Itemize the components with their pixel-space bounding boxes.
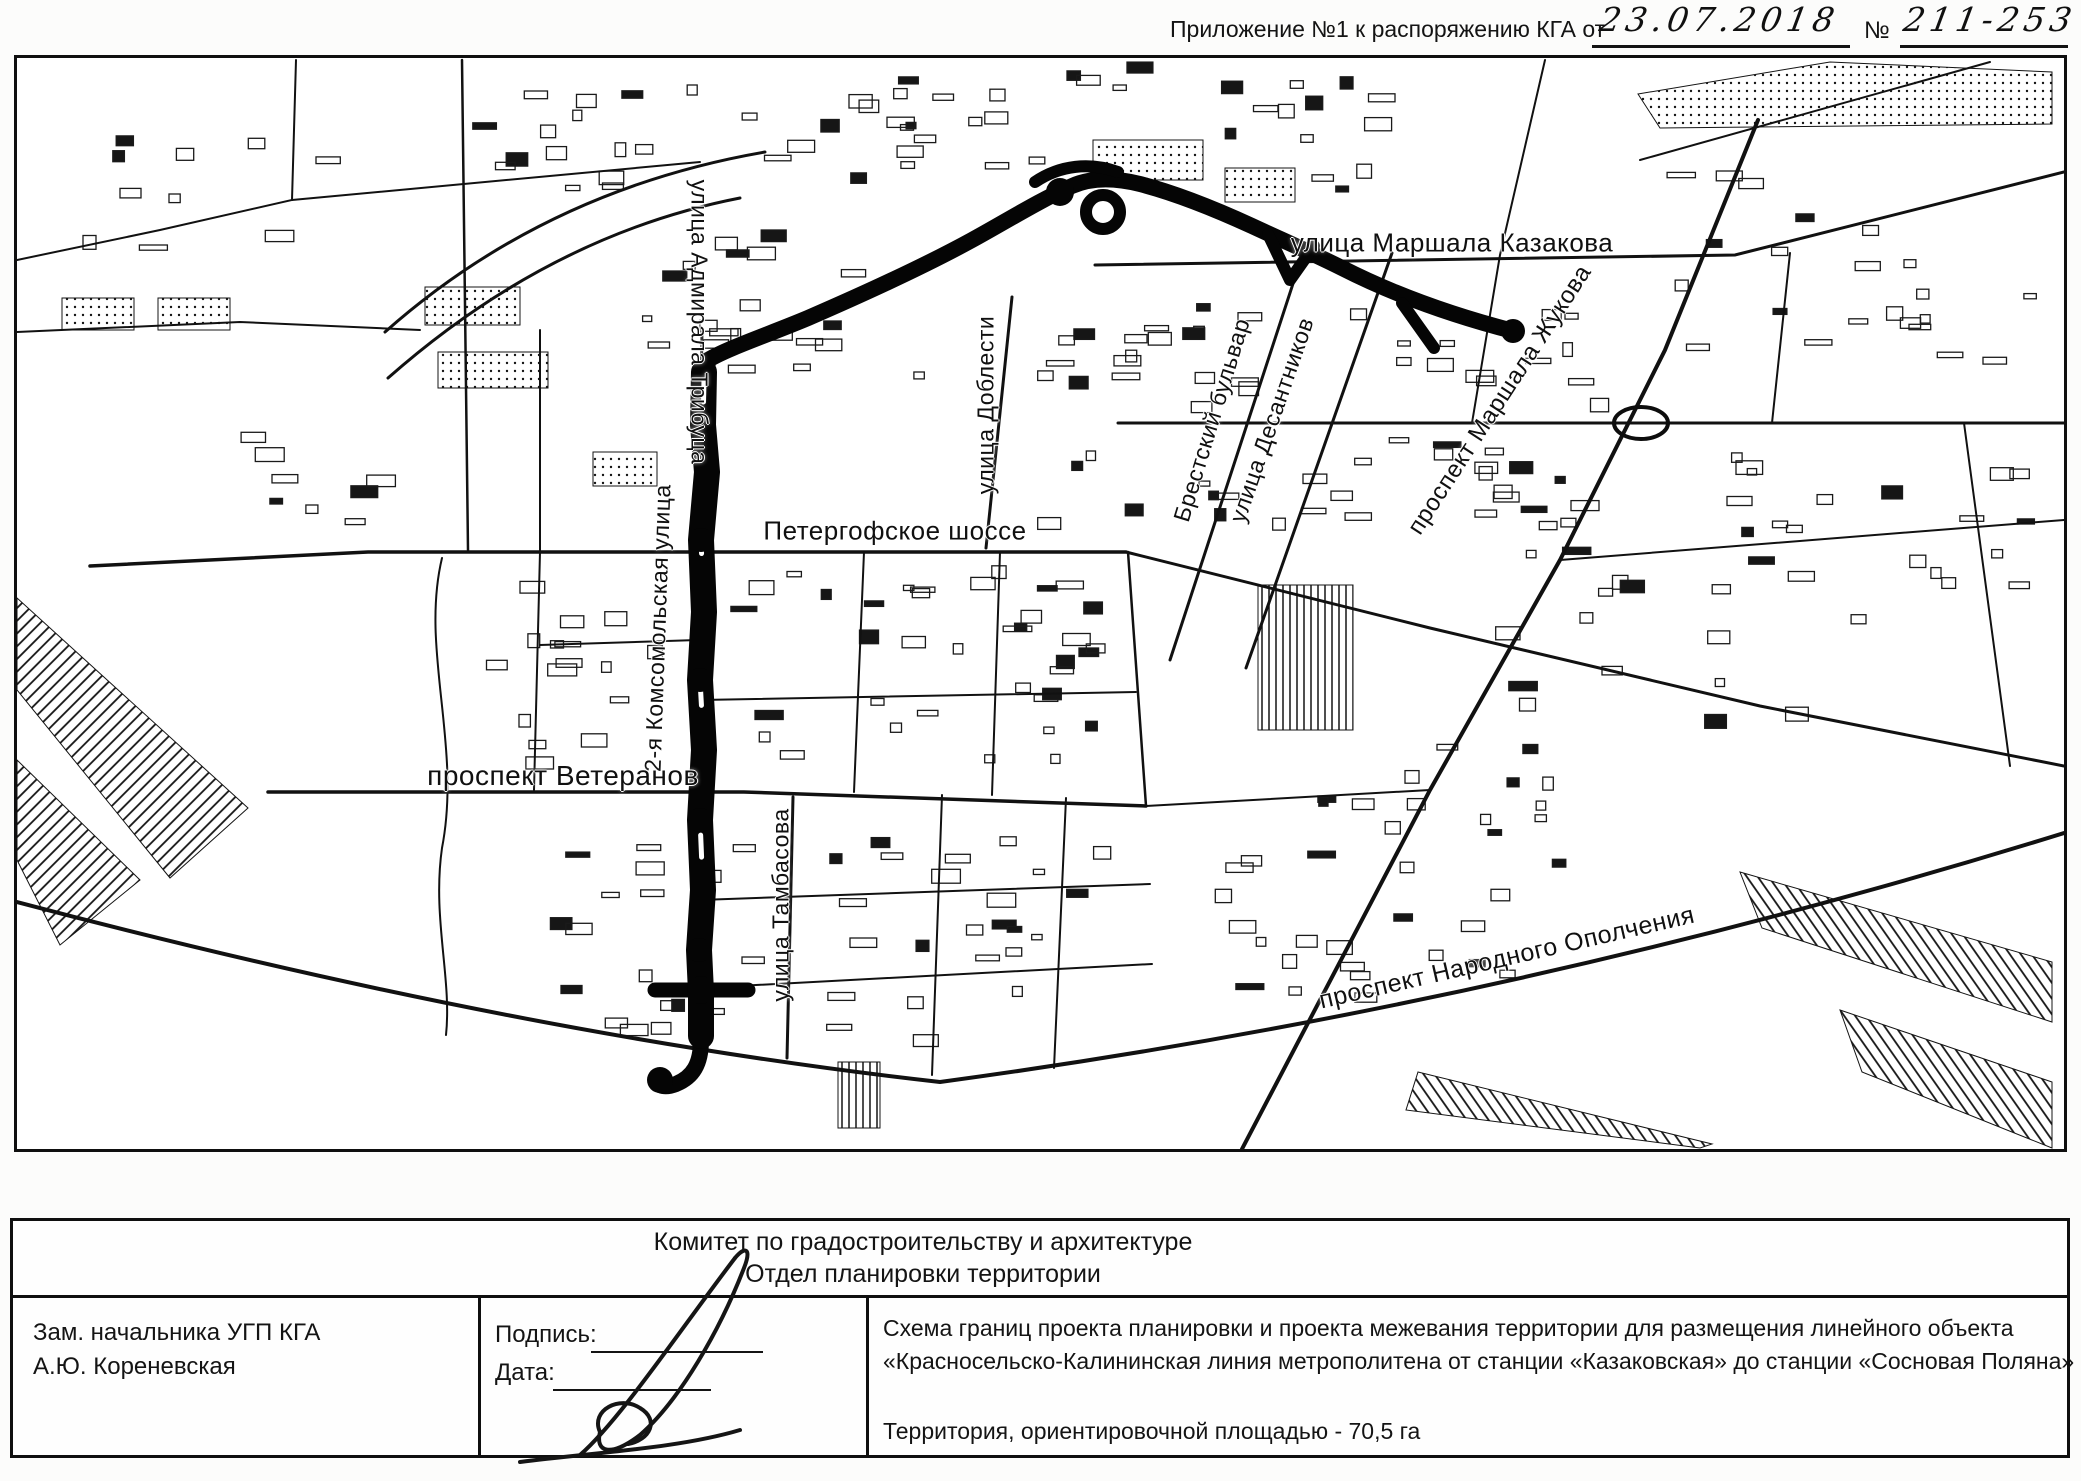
official-name: А.Ю. Кореневская <box>33 1353 236 1381</box>
org-header: Комитет по градостроительству и архитект… <box>13 1221 1833 1300</box>
area-note: Территория, ориентировочной площадью - 7… <box>883 1418 1420 1445</box>
appendix-number-sign: № <box>1864 17 1890 45</box>
title-block: Комитет по градостроительству и архитект… <box>10 1218 2070 1458</box>
title-block-row-divider <box>13 1295 2067 1298</box>
appendix-date-underline: 23.07.2018 <box>1592 0 1850 48</box>
signature-scribble <box>470 1238 870 1466</box>
city-map <box>17 58 2064 1149</box>
street-label-ulitsa-tambasova: улица Тамбасова <box>768 808 795 1001</box>
appendix-number-handwritten: 211-253 <box>1901 0 2080 39</box>
street-label-petergofskoe-shosse: Петергофское шоссе <box>763 516 1026 547</box>
street-label-ulitsa-admirala-tributsa: улица Адмирала Трибуца <box>686 180 713 465</box>
scheme-description-line2: «Красносельско-Калининская линия метропо… <box>883 1348 2074 1375</box>
appendix-date-handwritten: 23.07.2018 <box>1597 0 1843 39</box>
org-department: Отдел планировки территории <box>13 1258 1833 1290</box>
texture-areas-layer <box>17 62 2052 1148</box>
street-label-ulitsa-marshala-kazakova: улица Маршала Казакова <box>1291 228 1614 259</box>
official-position: Зам. начальника УГП КГА <box>33 1319 320 1347</box>
org-name: Комитет по градостроительству и архитект… <box>13 1226 1833 1258</box>
roads-layer <box>17 60 2064 1149</box>
street-label-ulitsa-doblesti: улица Доблести <box>973 316 1000 494</box>
scheme-description-line1: Схема границ проекта планировки и проект… <box>883 1315 2014 1342</box>
appendix-number-underline: 211-253 <box>1900 0 2068 48</box>
appendix-note: Приложение №1 к распоряжению КГА от <box>1170 16 1605 43</box>
buildings-layer <box>83 62 2036 1046</box>
scanned-plan-page: Приложение №1 к распоряжению КГА от 23.0… <box>0 0 2081 1481</box>
map-frame <box>14 55 2067 1152</box>
street-label-prospekt-veteranov: проспект Ветеранов <box>427 760 699 792</box>
